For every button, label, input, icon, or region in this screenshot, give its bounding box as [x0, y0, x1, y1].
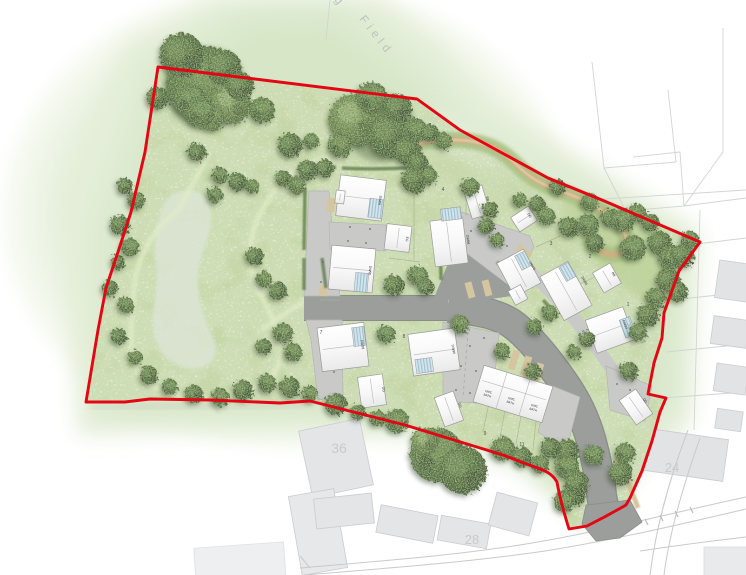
svg-text:1: 1 — [627, 302, 630, 308]
svg-text:36: 36 — [331, 440, 347, 456]
svg-text:3: 3 — [550, 241, 553, 247]
svg-text:9: 9 — [484, 431, 487, 437]
svg-text:EG: EG — [405, 236, 410, 242]
svg-text:DG: DG — [381, 387, 386, 393]
svg-text:4: 4 — [442, 187, 445, 193]
svg-text:28: 28 — [465, 532, 479, 547]
svg-text:7: 7 — [320, 330, 323, 336]
svg-text:24: 24 — [665, 460, 679, 475]
svg-text:DW95: DW95 — [368, 266, 373, 276]
svg-text:2: 2 — [589, 254, 592, 260]
svg-text:8: 8 — [403, 334, 406, 340]
